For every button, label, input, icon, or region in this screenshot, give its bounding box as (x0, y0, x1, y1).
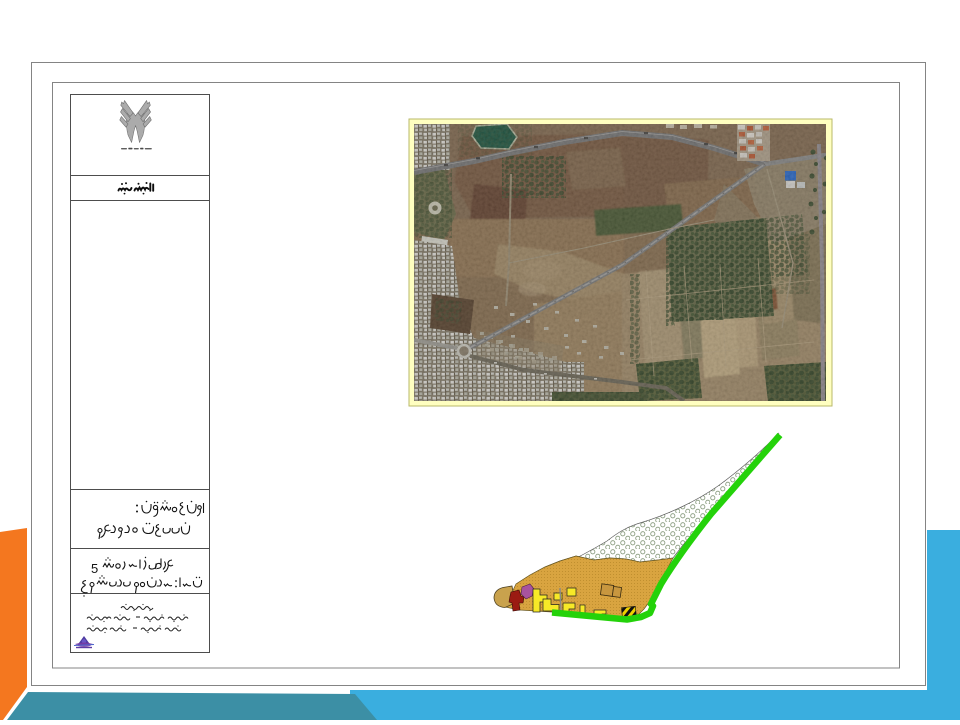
svg-text:5: 5 (91, 561, 98, 576)
